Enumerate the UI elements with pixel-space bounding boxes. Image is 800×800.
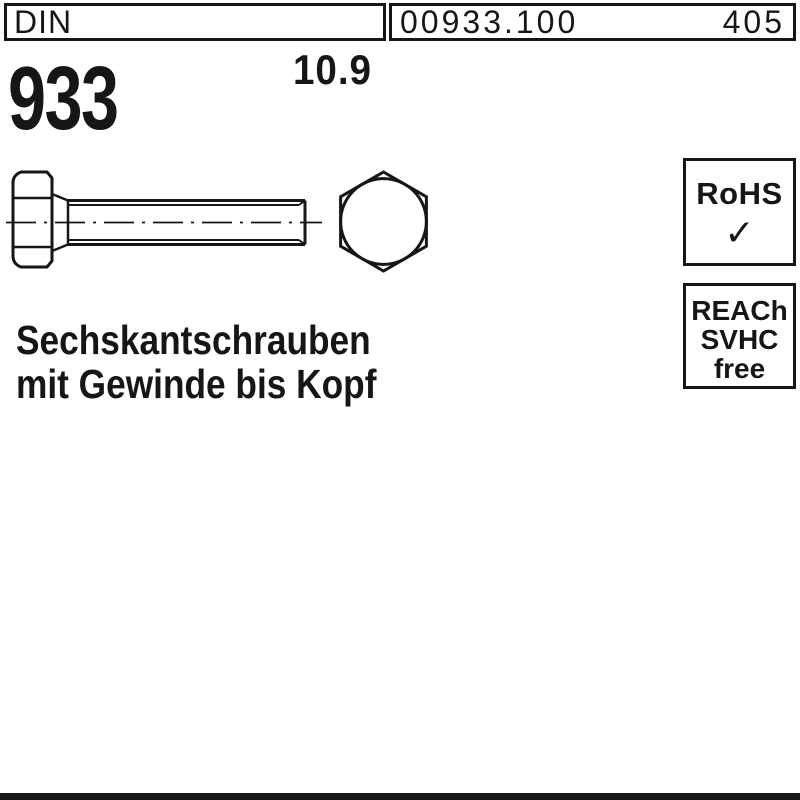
head-chamfer-circle [341, 179, 427, 265]
reach-badge: REACh SVHC free [683, 283, 796, 389]
checkmark-icon: ✓ [686, 213, 793, 254]
bolt-side-view [6, 172, 322, 267]
article-number: 00933.100 [400, 4, 578, 41]
standard-label: DIN [14, 4, 72, 41]
catalog-page: DIN 00933.100 405 933 10.9 [0, 0, 800, 800]
hex-head-front-view [341, 172, 427, 271]
rohs-badge: RoHS ✓ [683, 158, 796, 266]
bolt-head-outline [13, 172, 52, 267]
product-title: Sechskantschrauben mit Gewinde bis Kopf [16, 318, 376, 406]
strength-class: 10.9 [293, 46, 372, 94]
reach-line2: SVHC [686, 325, 793, 354]
product-title-line1: Sechskantschrauben [16, 318, 376, 362]
din-number: 933 [8, 54, 118, 144]
page-number: 405 [723, 4, 785, 41]
bolt-technical-drawing [0, 150, 450, 295]
reach-line1: REACh [686, 296, 793, 325]
hexagon-outline [341, 172, 427, 271]
product-title-line2: mit Gewinde bis Kopf [16, 362, 376, 406]
reach-line3: free [686, 354, 793, 383]
footer-bar [0, 793, 800, 800]
rohs-label: RoHS [686, 176, 793, 212]
header-number-box: 00933.100 405 [389, 3, 796, 41]
header-standard-box: DIN [4, 3, 386, 41]
